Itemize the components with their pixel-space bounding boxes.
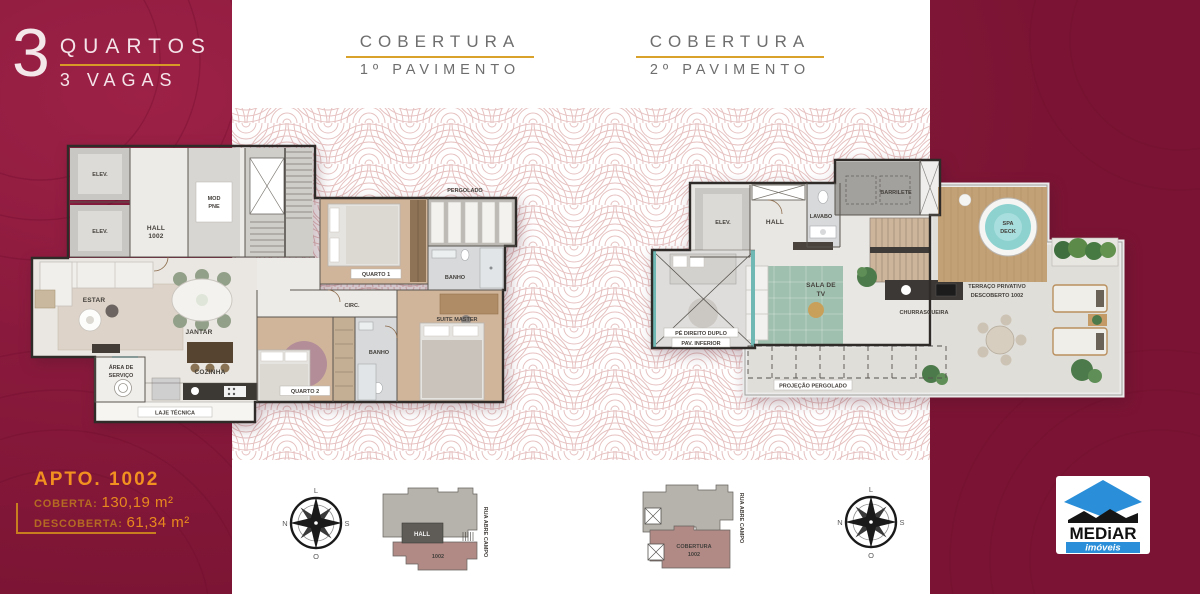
- site1-street-label: RUA ABRE CAMPO: [482, 507, 488, 558]
- label-elev2: ELEV.: [92, 229, 108, 235]
- compass1-south: S: [344, 519, 349, 528]
- label-sala-l2: TV: [817, 291, 826, 298]
- modpne-box: [196, 182, 232, 222]
- plan2-title: COBERTURA 2º PAVIMENTO: [630, 32, 830, 78]
- label-churrasqueira: CHURRASQUEIRA: [900, 310, 949, 316]
- label-suite: SUITE MASTER: [437, 317, 478, 323]
- compass-rose-1: L S O N: [281, 485, 351, 561]
- spa-deck: [938, 187, 1047, 282]
- plan1-title-top: COBERTURA: [340, 32, 540, 52]
- floor-plan-1: ELEV. ELEV. HALL 1002 MOD PNE PERGOLADO …: [28, 138, 520, 426]
- label-estar: ESTAR: [83, 297, 106, 304]
- compass2-west: O: [868, 551, 874, 560]
- gold-divider: [60, 64, 180, 66]
- site2-unit-label-l2: 1002: [688, 552, 700, 558]
- site1-unit-label: 1002: [432, 554, 444, 560]
- brand-header: 3 QUARTOS 3 VAGAS: [12, 22, 212, 91]
- tv-room-furniture: [746, 266, 843, 345]
- compass1-north: N: [282, 519, 287, 528]
- label-barrilete: BARRILETE: [880, 190, 912, 196]
- label-quarto2: QUARTO 2: [291, 389, 319, 395]
- label-pedireito-l2: PAV. INFERIOR: [681, 341, 720, 347]
- parking-label: 3 VAGAS: [60, 70, 212, 91]
- label-hall-l2: 1002: [148, 233, 163, 240]
- site-diagram-2: COBERTURA 1002 RUA ABRE CAMPO: [636, 482, 752, 576]
- label-projecao: PROJEÇÃO PERGOLADO: [779, 383, 848, 390]
- flyer-page: 3 QUARTOS 3 VAGAS COBERTURA 1º PAVIMENTO…: [0, 0, 1200, 594]
- label-terraco-l2: DESCOBERTO 1002: [971, 293, 1023, 299]
- label-sala-l1: SALA DE: [806, 282, 836, 289]
- label-mod-l2: PNE: [208, 204, 220, 210]
- site-diagram-1: HALL 1002 RUA ABRE CAMPO: [378, 486, 490, 578]
- site2-unit-label-l1: COBERTURA: [676, 544, 711, 550]
- plan1-title: COBERTURA 1º PAVIMENTO: [340, 32, 540, 78]
- logo-name: MEDiAR: [1069, 524, 1136, 543]
- compass-rose-2: L S O N: [836, 484, 906, 560]
- stairs-down: [870, 218, 930, 282]
- compass2-south: S: [899, 518, 904, 527]
- label-pedireito-l1: PÉ DIREITO DUPLO: [675, 329, 728, 337]
- gold-corner-bracket: [16, 503, 156, 534]
- bedrooms-label: QUARTOS: [60, 35, 212, 59]
- label-elev1: ELEV.: [92, 172, 108, 178]
- console-table: [793, 242, 833, 250]
- label-circ: CIRC.: [345, 303, 360, 309]
- label-banho2: BANHO: [369, 350, 390, 356]
- plan1-title-bottom: 1º PAVIMENTO: [340, 62, 540, 78]
- label-terraco-l1: TERRAÇO PRIVATIVO: [968, 284, 1026, 290]
- compass1-east: L: [314, 486, 318, 495]
- plan2-title-rule: [636, 56, 824, 58]
- label-hall-l1: HALL: [147, 225, 165, 232]
- unit-title: APTO. 1002: [34, 469, 190, 491]
- label-banho1: BANHO: [445, 275, 466, 281]
- logo-tagline: imóveis: [1085, 543, 1120, 554]
- label-jantar: JANTAR: [185, 329, 212, 336]
- entry-crossed-box: [752, 185, 805, 200]
- bedrooms-count: 3: [12, 22, 48, 85]
- pergolado-slats: [431, 202, 512, 243]
- plan2-title-top: COBERTURA: [630, 32, 830, 52]
- label-servico-l2: SERVIÇO: [109, 373, 134, 379]
- label-pergolado: PERGOLADO: [447, 188, 483, 194]
- compass1-west: O: [313, 552, 319, 561]
- label-cozinha: COZINHA: [194, 369, 225, 376]
- site1-hall-label: HALL: [414, 532, 430, 538]
- label-quarto1: QUARTO 1: [362, 272, 390, 278]
- label-hall: HALL: [766, 219, 784, 226]
- compass2-east: L: [869, 485, 873, 494]
- label-spa-l1: SPA: [1003, 221, 1014, 227]
- compass2-north: N: [837, 518, 842, 527]
- label-spa-l2: DECK: [1000, 229, 1016, 235]
- laundry-fixtures: [115, 380, 132, 397]
- dining-furniture: [172, 269, 232, 331]
- floor-plan-2: ELEV. HALL LAVABO BARRILETE SALA DE TV C…: [648, 150, 1126, 402]
- label-elev: ELEV.: [715, 220, 731, 226]
- plan1-title-rule: [346, 56, 534, 58]
- plan2-title-bottom: 2º PAVIMENTO: [630, 62, 830, 78]
- label-lavabo: LAVABO: [810, 214, 833, 220]
- mediar-logo: MEDiAR imóveis: [1056, 476, 1150, 554]
- label-mod-l1: MOD: [208, 196, 221, 202]
- site2-street-label: RUA ABRE CAMPO: [738, 493, 744, 544]
- label-laje: LAJE TÉCNICA: [155, 409, 195, 417]
- label-servico-l1: ÁREA DE: [109, 364, 134, 371]
